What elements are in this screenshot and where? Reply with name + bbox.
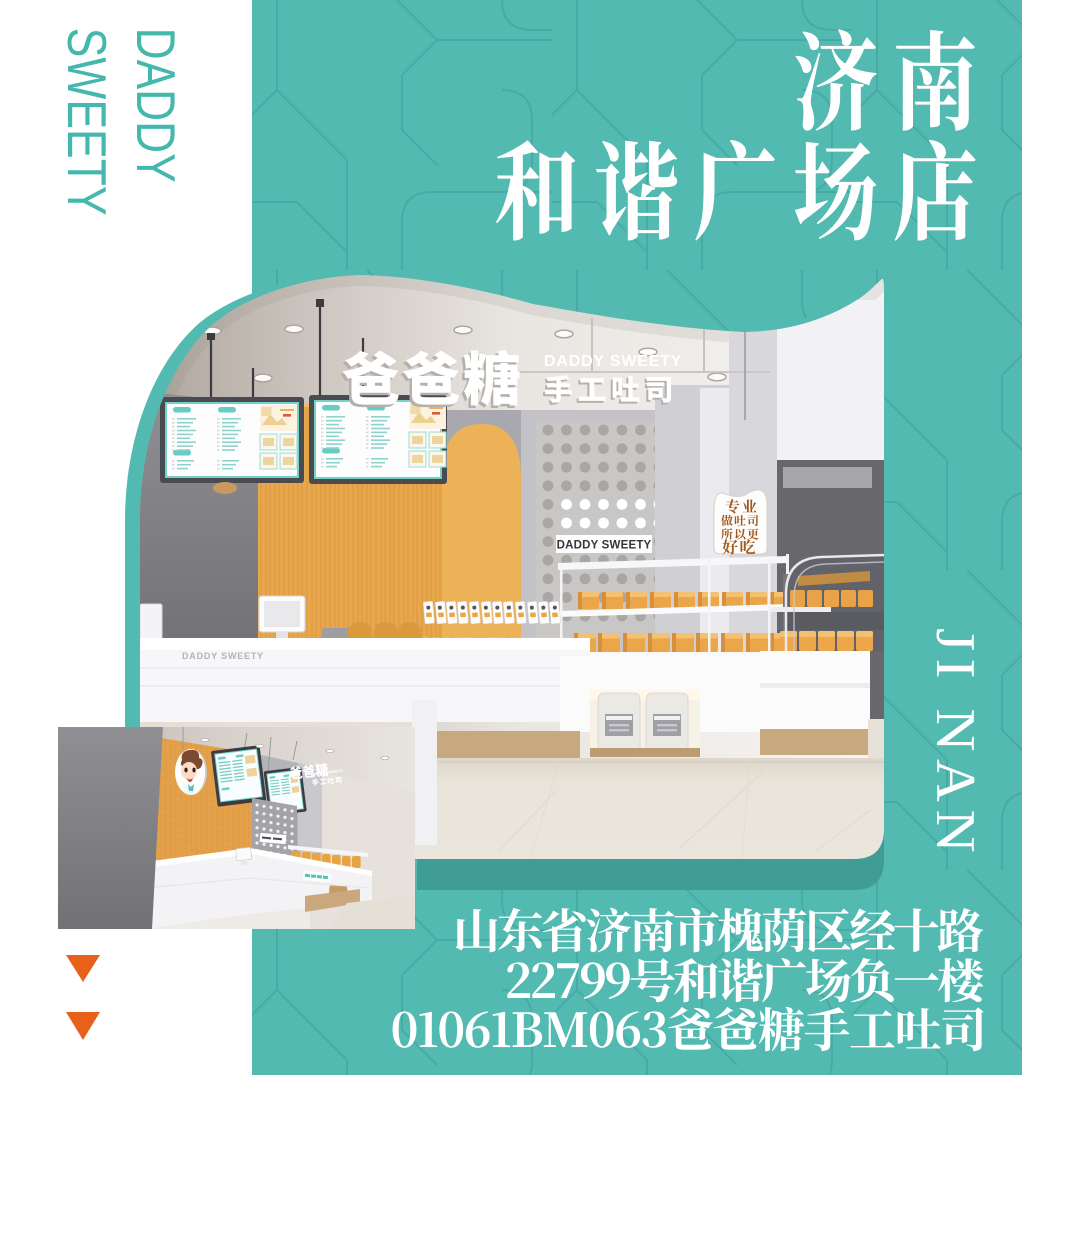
svg-text:DADDY SWEETY: DADDY SWEETY bbox=[544, 353, 682, 370]
svg-text:DADDY SWEETY: DADDY SWEETY bbox=[557, 540, 652, 552]
svg-text:SWEETY: SWEETY bbox=[56, 28, 118, 216]
svg-text:JI NAN: JI NAN bbox=[924, 628, 986, 860]
svg-text:DADDY: DADDY bbox=[125, 28, 187, 183]
svg-text:DADDY SWEETY: DADDY SWEETY bbox=[182, 651, 264, 661]
